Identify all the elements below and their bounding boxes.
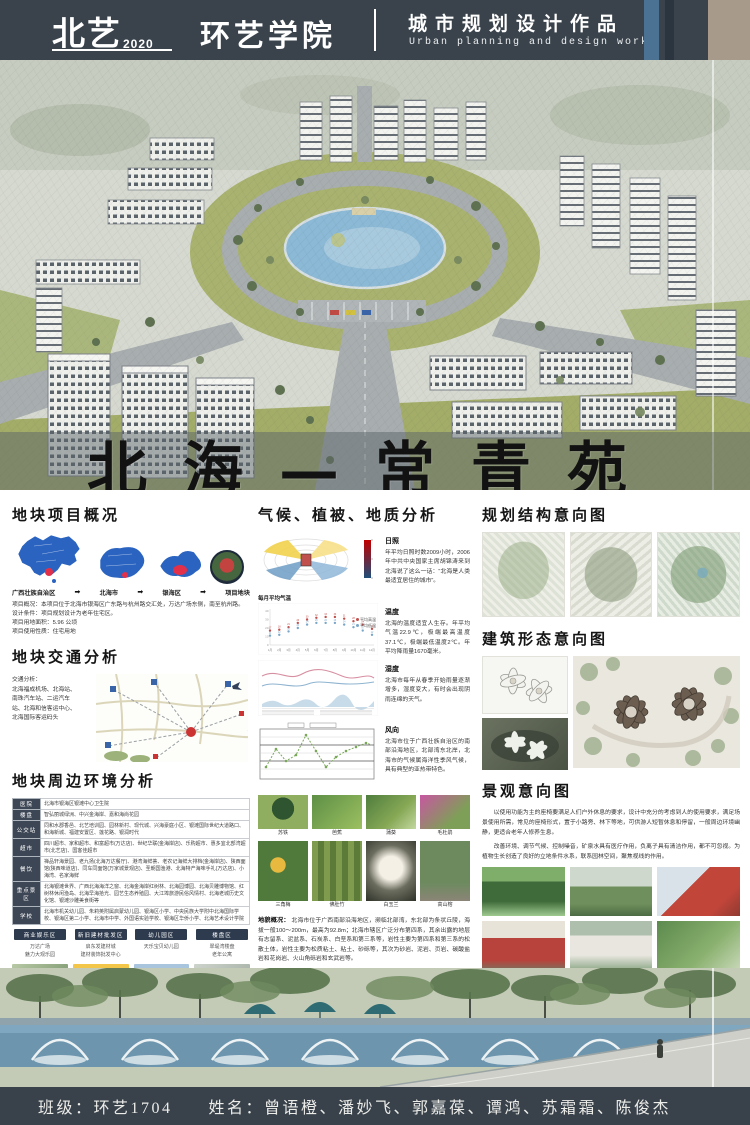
zone-caption: 天乐宝贝幼儿园 <box>133 943 189 959</box>
row-text: 北海市机关幼儿园、朱莉英附属启蒙幼儿园、银海区小学、中央民族大学附中北海国际学校… <box>41 907 250 925</box>
plant-photo <box>258 841 308 901</box>
wind-block: 风向 北海市位于广西壮族自治区的南部沿海地区，北部湾东北岸，北海市的气候属海洋性… <box>258 721 470 790</box>
plant-photo <box>312 841 362 901</box>
section-heading-landscape: 景观意向图 <box>482 780 740 801</box>
decor-corner-beige <box>708 0 750 60</box>
structure-reference-images <box>482 532 740 617</box>
location-step: 北海市 <box>100 588 119 597</box>
structure-plan-image <box>570 532 653 617</box>
landscape-paragraph-1: 以使用功能为主的座椅要满足人们户外休息的要求，设计中充分的考虑到人的使用要求，满… <box>482 808 740 838</box>
zone-caption: 万达广场魅力大观乐园 <box>12 943 68 959</box>
table-row: 学校北海市机关幼儿园、朱莉英附属启蒙幼儿园、银海区小学、中央民族大学附中北海国际… <box>13 907 250 925</box>
header: 北艺2020 环艺学院 城市规划设计作品 Urban planning and … <box>0 0 750 60</box>
table-row: 楼盘智弘丽城绿洲、中兴金海岸、嘉和海尚花园 <box>13 810 250 821</box>
svg-text:11月: 11月 <box>360 648 366 652</box>
row-text: 四川超市、家和超市、和富超市(万达店)、世纪华联(金海岸店)、乐购超市、惠多宜北… <box>41 839 250 857</box>
svg-text:40: 40 <box>265 609 269 613</box>
flower-model-sketch <box>485 661 565 709</box>
zone-tag-building-materials: 新旧建材批发区 <box>75 929 127 940</box>
section-heading-environment: 地块周边环境分析 <box>12 770 250 791</box>
sunlight-text: 日照 年平均日照时数2009小时，2006年中共中央国家主席胡锦涛来到北海说了这… <box>385 532 470 591</box>
plant-photo <box>312 795 362 829</box>
sun-path-diagram <box>258 532 378 586</box>
location-breadcrumb: 广西壮族自治区 ➡ 北海市 ➡ 银海区 ➡ 项目地块 <box>12 586 250 598</box>
svg-text:7月: 7月 <box>323 648 328 652</box>
flower-aerial-sketch <box>485 722 565 766</box>
info-line: 项目用地面积：5.96 公顷 <box>12 619 250 628</box>
right-column: 规划结构意向图 建筑形态意向图 <box>482 504 740 968</box>
plant-item: 白玉兰 <box>366 841 416 909</box>
row-label: 超市 <box>13 839 41 857</box>
traffic-map <box>96 674 248 762</box>
yinhai-district-map <box>154 544 204 584</box>
building-aerial-photo <box>482 718 568 770</box>
legend-high-icon <box>356 618 359 621</box>
humidity-chart <box>258 660 378 716</box>
structure-plan-image <box>657 532 740 617</box>
plant-photo <box>366 841 416 901</box>
logo-underline <box>52 49 172 51</box>
zone-tags: 商业娱乐区 新旧建材批发区 幼儿园区 楼盘区 <box>14 929 248 940</box>
section-heading-building-form: 建筑形态意向图 <box>482 628 740 649</box>
arrow-right-icon: ➡ <box>200 588 206 596</box>
info-line: 项目使用性质：住宅用地 <box>12 628 250 637</box>
svg-text:9月: 9月 <box>342 648 347 652</box>
landscape-photo-hedge <box>657 921 740 968</box>
guangxi-map <box>92 540 148 584</box>
table-row: 医院北海市银海区银滩中心卫生院 <box>13 799 250 810</box>
humidity-label: 湿度 <box>385 665 470 675</box>
table-row: 重点景区北海银滩世界、广西北海海洋之窗、北海金海岸红树林、北海园博园、北海贝雕博… <box>13 882 250 907</box>
plant-item: 蒲葵 <box>366 795 416 837</box>
temperature-label: 温度 <box>385 608 470 618</box>
wind-chart <box>258 721 378 785</box>
decor-stripe-blue <box>644 0 659 60</box>
svg-text:10: 10 <box>265 635 269 639</box>
fountain-photo <box>0 968 750 1087</box>
row-label: 医院 <box>13 799 41 810</box>
names-label: 姓名：曾语橙、潘妙飞、郭嘉葆、谭鸿、苏霜霜、陈俊杰 <box>209 1094 672 1118</box>
svg-text:12月: 12月 <box>369 648 375 652</box>
poster-title-en: Urban planning and design works <box>409 37 657 48</box>
aerial-rendering: 北海—常青苑 <box>0 60 750 490</box>
row-label: 公交站 <box>13 821 41 839</box>
landscape-photo-green-roof <box>570 867 653 916</box>
row-label: 学校 <box>13 907 41 925</box>
row-text: 同和水郡香邑、北艺培训园、园林新村、现代城、兴海豪庭小区、银滩国际世纪大道路口、… <box>41 821 250 839</box>
location-maps <box>12 532 250 584</box>
poster-title-cn: 城市规划设计作品 <box>408 9 624 36</box>
china-map <box>12 532 86 584</box>
location-step: 项目地块 <box>225 588 250 597</box>
plant-photos: 苏铁 芭蕉 蒲葵 毛杜鹃 三角梅 佛肚竹 白玉兰 高山榕 <box>258 795 470 909</box>
design-poster: 北艺2020 环艺学院 城市规划设计作品 Urban planning and … <box>0 0 750 1125</box>
landscape-photo-canopy <box>570 921 653 968</box>
school-logo: 北艺2020 <box>52 7 153 55</box>
section-heading-overview: 地块项目概况 <box>12 504 250 525</box>
landscape-reference-photos <box>482 867 740 968</box>
row-text: 北海市银海区银滩中心卫生院 <box>41 799 250 810</box>
svg-text:8月: 8月 <box>333 648 338 652</box>
environment-table: 医院北海市银海区银滩中心卫生院 楼盘智弘丽城绿洲、中兴金海岸、嘉和海尚花园 公交… <box>12 798 250 925</box>
temperature-chart-title: 每月平均气温 <box>258 594 470 602</box>
building-model-photo <box>482 656 568 714</box>
temperature-block: 0102030401月2月3月4月5月6月7月8月9月10月11月12月1718… <box>258 603 470 660</box>
row-text: 禅品轩海景园、老九扬(北海万达餐厅)、港湾海鲜荟、老农记海鲜大排档(金海岸店)、… <box>41 857 250 882</box>
info-line: 项目概况：本项目位于北海市银海区广东路与杭州路交汇处，万达广场东侧，南至杭州路。 <box>12 601 250 610</box>
temperature-text: 温度 北海的温度适宜人生存。年平均气温22.9℃，极端最高温度37.1℃，极端最… <box>385 603 470 660</box>
chart-legend: 平均高温 平均低温 <box>356 617 376 629</box>
zone-tag-residential: 楼盘区 <box>196 929 248 940</box>
person-silhouette <box>657 1039 663 1058</box>
plant-photo <box>258 795 308 829</box>
table-row: 超市四川超市、家和超市、和富超市(万达店)、世纪华联(金海岸店)、乐购超市、惠多… <box>13 839 250 857</box>
zone-tag-kindergarten: 幼儿园区 <box>135 929 187 940</box>
table-row: 公交站同和水郡香邑、北艺培训园、园林新村、现代城、兴海豪庭小区、银滩国际世纪大道… <box>13 821 250 839</box>
landscape-photo-park <box>482 867 565 916</box>
wind-text: 风向 北海市位于广西壮族自治区的南部沿海地区，北部湾东北岸，北海市的气候属海洋性… <box>385 721 470 790</box>
plant-item: 高山榕 <box>420 841 470 909</box>
traffic-analysis: 交通分析： 北海福成机场、北海站、 南珠汽车站、二运汽车 站、北海和信客运中心、… <box>12 674 250 762</box>
flower-plan-drawing <box>573 656 740 768</box>
fountain-scene <box>0 968 750 1087</box>
table-row: 餐饮禅品轩海景园、老九扬(北海万达餐厅)、港湾海鲜荟、老农记海鲜大排档(金海岸店… <box>13 857 250 882</box>
section-heading-structure: 规划结构意向图 <box>482 504 740 525</box>
plant-item: 三角梅 <box>258 841 308 909</box>
footer: 班级：环艺1704 姓名：曾语橙、潘妙飞、郭嘉葆、谭鸿、苏霜霜、陈俊杰 <box>0 1087 750 1125</box>
site-satellite-thumbnail <box>210 550 244 584</box>
college-name: 环艺学院 <box>200 11 336 55</box>
landscape-paragraph-2: 改善环境、调节气候、控制噪音，矿泉水具有医疗作用，负离子具有清洁作用，都不可忽视… <box>482 842 740 862</box>
geomorphology-block: 地貌概况： 北海市位于广西南部沿海地区，濒临北部湾，东北部为条状丘陵，海拔一般1… <box>258 916 470 965</box>
arrow-right-icon: ➡ <box>137 588 143 596</box>
geomorphology-heading: 地貌概况： <box>258 917 290 924</box>
header-divider <box>374 9 376 51</box>
row-text: 北海银滩世界、广西北海海洋之窗、北海金海岸红树林、北海园博园、北海贝雕博物馆、红… <box>41 882 250 907</box>
plant-photo <box>420 841 470 901</box>
arrow-right-icon: ➡ <box>75 588 81 596</box>
row-label: 餐饮 <box>13 857 41 882</box>
section-heading-climate: 气候、植被、地质分析 <box>258 504 470 525</box>
zone-caption: 启东发建材城建材装饰批发中心 <box>73 943 129 959</box>
humidity-text: 湿度 北海市每年从春季开始雨量逐渐增多，湿度变大，有时会出现阴雨连绵的天气。 <box>385 660 470 721</box>
plant-photo <box>420 795 470 829</box>
svg-text:30: 30 <box>265 618 269 622</box>
svg-text:10月: 10月 <box>350 648 356 652</box>
structure-plan-image <box>482 532 565 617</box>
left-column: 地块项目概况 广西 <box>12 504 250 968</box>
zone-caption: 翠堤湾楼盘老年公寓 <box>194 943 250 959</box>
plant-photo <box>366 795 416 829</box>
decor-stripe-navy <box>665 0 674 60</box>
svg-text:3月: 3月 <box>286 648 291 652</box>
humidity-block: 湿度 北海市每年从春季开始雨量逐渐增多，湿度变大，有时会出现阴雨连绵的天气。 <box>258 660 470 721</box>
location-step: 银海区 <box>162 588 181 597</box>
svg-text:4月: 4月 <box>296 648 301 652</box>
location-step: 广西壮族自治区 <box>12 588 55 597</box>
plant-item: 毛杜鹃 <box>420 795 470 837</box>
row-label: 重点景区 <box>13 882 41 907</box>
svg-text:2月: 2月 <box>277 648 282 652</box>
zone-captions: 万达广场魅力大观乐园 启东发建材城建材装饰批发中心 天乐宝贝幼儿园 翠堤湾楼盘老… <box>12 943 250 959</box>
middle-column: 气候、植被、地质分析 <box>258 504 470 968</box>
building-form-images <box>482 656 740 770</box>
landscape-photo-cafe-seating <box>482 921 565 968</box>
main-content: 地块项目概况 广西 <box>0 490 750 968</box>
sunlight-block: 日照 年平均日照时数2009小时，2006年中共中央国家主席胡锦涛来到北海说了这… <box>258 532 470 591</box>
project-info: 项目概况：本项目位于北海市银海区广东路与杭州路交汇处，万达广场东侧，南至杭州路。… <box>12 601 250 637</box>
legend-low-icon <box>356 624 359 627</box>
row-label: 楼盘 <box>13 810 41 821</box>
info-line: 设计条件：项目规划设计为老年住宅区。 <box>12 610 250 619</box>
svg-text:5月: 5月 <box>305 648 310 652</box>
svg-text:6月: 6月 <box>314 648 319 652</box>
section-heading-traffic: 地块交通分析 <box>12 646 250 667</box>
row-text: 智弘丽城绿洲、中兴金海岸、嘉和海尚花园 <box>41 810 250 821</box>
traffic-text: 交通分析： 北海福成机场、北海站、 南珠汽车站、二运汽车 站、北海和信客运中心、… <box>12 674 90 762</box>
plant-item: 苏铁 <box>258 795 308 837</box>
building-form-plan <box>573 656 740 768</box>
wind-label: 风向 <box>385 726 470 736</box>
landscape-photo-red-structure <box>657 867 740 916</box>
class-label: 班级：环艺1704 <box>38 1094 173 1118</box>
zone-tag-commercial: 商业娱乐区 <box>14 929 66 940</box>
svg-text:1月: 1月 <box>268 648 273 652</box>
plant-item: 佛肚竹 <box>312 841 362 909</box>
plant-item: 芭蕉 <box>312 795 362 837</box>
sunlight-label: 日照 <box>385 537 470 547</box>
temperature-chart: 0102030401月2月3月4月5月6月7月8月9月10月11月12月1718… <box>258 603 378 655</box>
